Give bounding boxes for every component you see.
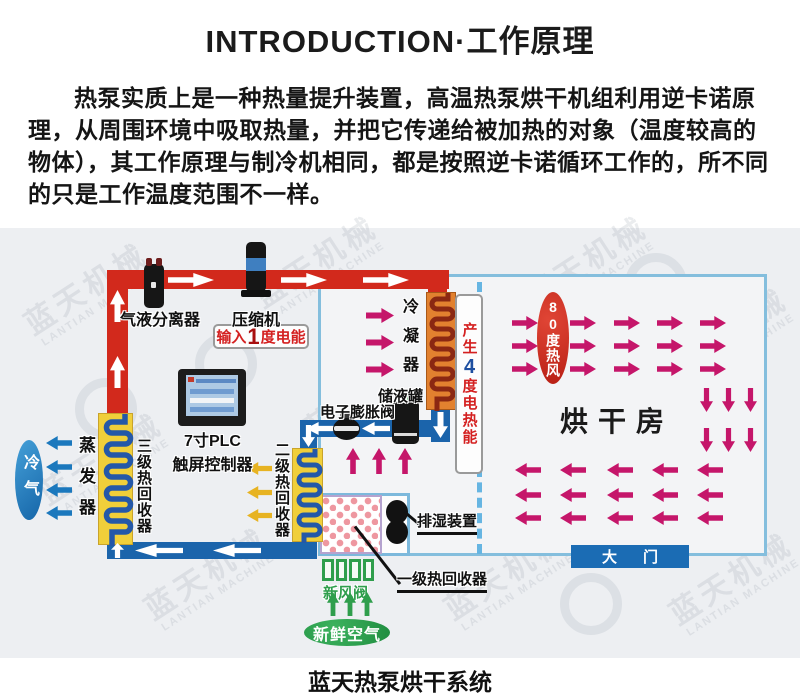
separator-label: 气液分离器 bbox=[120, 306, 200, 330]
evaporator-label: 蒸发器 bbox=[73, 436, 98, 529]
exhaust-fan-icon bbox=[386, 520, 408, 544]
logo-ring-icon bbox=[560, 573, 622, 635]
recovered-heat-arrow-icon bbox=[247, 509, 272, 522]
fresh-air-valve-figure bbox=[322, 559, 374, 581]
produce-heat-value: 4 bbox=[458, 356, 481, 378]
cold-air-arrow-icon bbox=[46, 460, 72, 474]
gate-banner: 大门 bbox=[571, 545, 689, 568]
produce-heat-suffix: 度电热能 bbox=[459, 378, 480, 446]
valve-cell bbox=[322, 559, 334, 581]
cold-air-oval: 冷气 bbox=[15, 440, 43, 520]
plc-screen-dot bbox=[188, 377, 194, 382]
watermark: 蓝天机械LANTIAN MACHINE bbox=[140, 523, 281, 635]
separator-cap-icon bbox=[156, 258, 162, 266]
liquid-tank-figure bbox=[392, 400, 419, 444]
cold-air-arrow-icon bbox=[46, 483, 72, 497]
valve-cell bbox=[349, 559, 361, 581]
fresh-air-oval: 新鲜空气 bbox=[304, 619, 390, 646]
drying-room-label: 烘干房 bbox=[560, 400, 674, 440]
page: INTRODUCTION·工作原理 热泵实质上是一种热量提升装置，高温热泵烘干机… bbox=[0, 0, 800, 698]
page-title: INTRODUCTION·工作原理 bbox=[0, 16, 800, 61]
recovered-heat-arrow-icon bbox=[247, 486, 272, 499]
stage3-recovery-label: 三级热回收器 bbox=[133, 438, 154, 534]
valve-stripe-icon bbox=[334, 426, 359, 431]
separator-cap-icon bbox=[146, 258, 152, 266]
plc-screen-row bbox=[190, 407, 234, 412]
watermark: 蓝天机械LANTIAN MACHINE bbox=[20, 238, 161, 350]
compressor-base-icon bbox=[241, 290, 271, 297]
system-diagram: 蓝天机械LANTIAN MACHINE 蓝天机械LANTIAN MACHINE … bbox=[0, 228, 800, 658]
cold-air-label: 冷气 bbox=[17, 454, 41, 506]
stage1-heat-recovery-figure bbox=[320, 495, 382, 554]
hot-wind-oval: 80度热风 bbox=[537, 292, 569, 384]
plc-label-line2: 触屏控制器 bbox=[170, 451, 255, 475]
compressor-label: 压缩机 bbox=[232, 306, 280, 330]
valve-cell bbox=[336, 559, 348, 581]
plc-screen-row bbox=[196, 379, 236, 383]
gate-label: 大门 bbox=[576, 546, 684, 567]
cold-air-arrow-icon bbox=[46, 436, 72, 450]
condenser-label: 冷凝器 bbox=[396, 298, 420, 385]
hot-wind-label: 80度热风 bbox=[543, 299, 563, 378]
stage1-recovery-label: 一级热回收器 bbox=[397, 568, 487, 593]
condenser-coil bbox=[426, 292, 456, 410]
expansion-valve-label: 电子膨胀阀 bbox=[320, 401, 395, 422]
fresh-air-label: 新鲜空气 bbox=[313, 621, 381, 645]
dehumidifier-label: 排湿装置 bbox=[417, 510, 477, 535]
plc-screen-row bbox=[190, 389, 234, 394]
compressor-band-icon bbox=[246, 258, 266, 271]
diagram-caption: 蓝天热泵烘干系统 bbox=[0, 663, 800, 697]
separator-window-icon bbox=[151, 282, 156, 288]
valve-cell bbox=[363, 559, 375, 581]
plc-label: 7寸PLC 触屏控制器 bbox=[170, 427, 255, 475]
plc-screen bbox=[186, 375, 238, 416]
produce-heat-prefix: 产生 bbox=[459, 322, 480, 356]
plc-label-line1: 7寸PLC bbox=[170, 427, 255, 451]
cold-air-arrow-icon bbox=[46, 506, 72, 520]
plc-controller-figure bbox=[178, 369, 246, 426]
stage2-recovery-coil bbox=[292, 448, 323, 542]
plc-screen-row bbox=[190, 398, 234, 403]
stage2-recovery-label: 二级热回收器 bbox=[271, 442, 292, 538]
produce-heat-box: 产生4度电热能 bbox=[455, 294, 483, 474]
intro-paragraph: 热泵实质上是一种热量提升装置，高温热泵烘干机组利用逆卡诺原理，从周围环境中吸取热… bbox=[28, 82, 776, 210]
evaporator-coil bbox=[98, 413, 133, 545]
tank-stripe-icon bbox=[394, 433, 417, 436]
